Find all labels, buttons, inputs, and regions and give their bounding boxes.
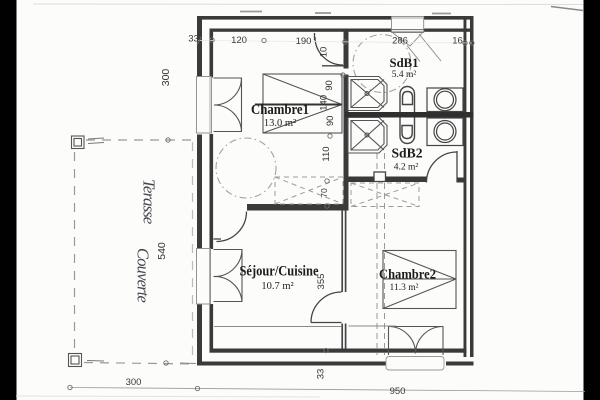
svg-text:90: 90: [324, 80, 335, 91]
svg-text:33: 33: [188, 34, 199, 45]
svg-text:70: 70: [319, 188, 329, 198]
svg-text:11.3 m²: 11.3 m²: [390, 283, 419, 293]
svg-text:10: 10: [319, 47, 330, 58]
svg-text:120: 120: [231, 35, 247, 46]
svg-text:Terasse: Terasse: [140, 179, 159, 225]
svg-text:33: 33: [316, 369, 327, 380]
svg-text:Couverte: Couverte: [134, 248, 153, 303]
svg-text:SdB2: SdB2: [392, 146, 423, 161]
svg-text:140: 140: [319, 95, 330, 111]
svg-text:Chambre2: Chambre2: [379, 268, 436, 283]
svg-text:10.7 m²: 10.7 m²: [261, 281, 293, 292]
svg-text:300: 300: [160, 69, 172, 87]
svg-text:540: 540: [156, 242, 168, 260]
svg-text:90: 90: [325, 116, 336, 127]
svg-text:190: 190: [296, 36, 312, 47]
svg-text:16: 16: [452, 36, 463, 47]
svg-text:4.2 m²: 4.2 m²: [394, 163, 419, 173]
svg-text:13.0 m²: 13.0 m²: [264, 118, 296, 129]
svg-text:950: 950: [390, 386, 406, 397]
svg-text:Chambre1: Chambre1: [251, 102, 309, 118]
svg-text:300: 300: [126, 377, 142, 388]
svg-text:Séjour/Cuisine: Séjour/Cuisine: [240, 264, 319, 280]
svg-text:110: 110: [321, 146, 332, 161]
svg-text:SdB1: SdB1: [390, 55, 419, 70]
svg-text:5.4 m²: 5.4 m²: [392, 70, 417, 80]
svg-text:286: 286: [392, 36, 408, 47]
